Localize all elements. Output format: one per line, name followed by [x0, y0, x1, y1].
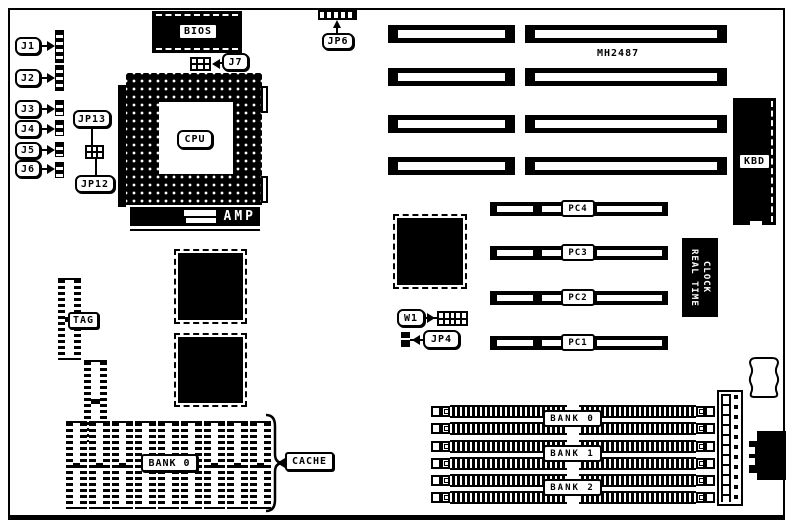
isa-slot-3-right: [525, 115, 727, 133]
jumper-label-jp13: JP13: [73, 110, 111, 128]
jumper-label-j7: J7: [222, 53, 249, 71]
jumper-block-w1: [437, 311, 468, 326]
amp-stripe: [184, 210, 216, 216]
amp-label: AMP: [224, 209, 256, 224]
jumper-block-j7: [190, 57, 211, 71]
jumper-label-jp4: JP4: [423, 330, 460, 349]
jumper-label-jp6: JP6: [322, 33, 354, 50]
arrow-right-icon: [47, 124, 55, 134]
kbd-controller: KBD: [733, 98, 776, 225]
amp-stripe: [186, 218, 216, 223]
din-notch: [749, 447, 755, 454]
pci-slot-pc2: PC2: [490, 291, 668, 305]
cpu-socket-left-bar: [118, 85, 126, 207]
chipset-qfp-3: [397, 218, 463, 285]
din-keyboard-connector-step: [749, 441, 759, 473]
cpu-socket-tab-bottom: [261, 176, 268, 203]
connector-label-j5: J5: [15, 142, 41, 159]
simm-bank-label: BANK 2: [543, 479, 602, 496]
connector-label-j3: J3: [15, 100, 41, 118]
pci-slot-label: PC1: [561, 334, 595, 351]
kbd-label: KBD: [738, 153, 771, 170]
jumper-label-w1: W1: [397, 309, 425, 327]
arrow-right-icon: [47, 145, 55, 155]
arrow-right-icon: [47, 41, 55, 51]
board-part-number: MH2487: [597, 48, 639, 59]
din-notch: [749, 458, 755, 465]
header-j4: [55, 120, 64, 136]
battery-outline: [747, 356, 781, 399]
header-j1: [55, 30, 64, 63]
cache-bank-label: BANK 0: [141, 454, 198, 472]
header-j2: [55, 65, 64, 91]
motherboard-diagram: J1 J2 J3 J4 J5 J6 JP13 JP12 BIOS J7 CPU: [0, 0, 791, 527]
rtc-label-line2: CLOCK: [701, 261, 711, 293]
pci-slot-pc1: PC1: [490, 336, 668, 350]
isa-slot-1-right: [525, 25, 727, 43]
header-jp6: [318, 10, 357, 20]
isa-slot-1-left: [388, 25, 515, 43]
kbd-notch: [750, 221, 762, 225]
leader-line: [425, 317, 437, 319]
jp4-gap: [401, 338, 410, 340]
jumper-block-jp13-jp12: [85, 145, 104, 159]
simm-bank-label: BANK 0: [543, 410, 602, 427]
isa-slot-3-left: [388, 115, 515, 133]
din-keyboard-connector: [757, 431, 786, 480]
amp-regulator: AMP: [130, 207, 260, 226]
isa-slot-4-left: [388, 157, 515, 175]
arrow-left-icon: [277, 458, 285, 468]
pci-slot-pc4: PC4: [490, 202, 668, 216]
pci-slot-pc3: PC3: [490, 246, 668, 260]
connector-label-j4: J4: [15, 120, 41, 138]
leader-line: [336, 24, 338, 33]
jumper-label-jp12: JP12: [75, 175, 115, 193]
pci-slot-label: PC2: [561, 289, 595, 306]
header-j5: [55, 142, 64, 157]
arrow-right-icon: [47, 73, 55, 83]
isa-slot-4-right: [525, 157, 727, 175]
arrow-right-icon: [47, 104, 55, 114]
chipset-qfp-2: [178, 337, 243, 403]
cpu-label: CPU: [177, 130, 213, 149]
tag-label: TAG: [68, 312, 99, 329]
chipset-qfp-1: [178, 253, 243, 320]
amp-underline: [130, 229, 260, 231]
arrow-left-icon: [212, 59, 220, 69]
cache-label: CACHE: [285, 452, 334, 471]
cpu-socket-tab-top: [261, 86, 268, 113]
leader-line: [91, 128, 93, 145]
power-connector: [717, 390, 743, 506]
rtc-label-line1: REAL TIME: [689, 249, 699, 307]
leader-line: [95, 159, 97, 175]
connector-label-j2: J2: [15, 69, 41, 87]
arrow-right-icon: [47, 164, 55, 174]
arrow-left-icon: [412, 335, 420, 345]
real-time-clock-chip: REAL TIME CLOCK: [682, 238, 718, 317]
connector-label-j1: J1: [15, 37, 41, 55]
header-j3: [55, 100, 64, 116]
connector-label-j6: J6: [15, 160, 41, 178]
isa-slot-2-left: [388, 68, 515, 86]
bios-label: BIOS: [178, 23, 218, 40]
isa-slot-2-right: [525, 68, 727, 86]
cpu-socket: CPU: [126, 73, 262, 205]
header-j6: [55, 162, 64, 178]
pci-slot-label: PC4: [561, 200, 595, 217]
jumper-block-jp4: [401, 332, 410, 347]
simm-bank-label: BANK 1: [543, 445, 602, 462]
pci-slot-label: PC3: [561, 244, 595, 261]
bios-chip: BIOS: [152, 11, 242, 53]
